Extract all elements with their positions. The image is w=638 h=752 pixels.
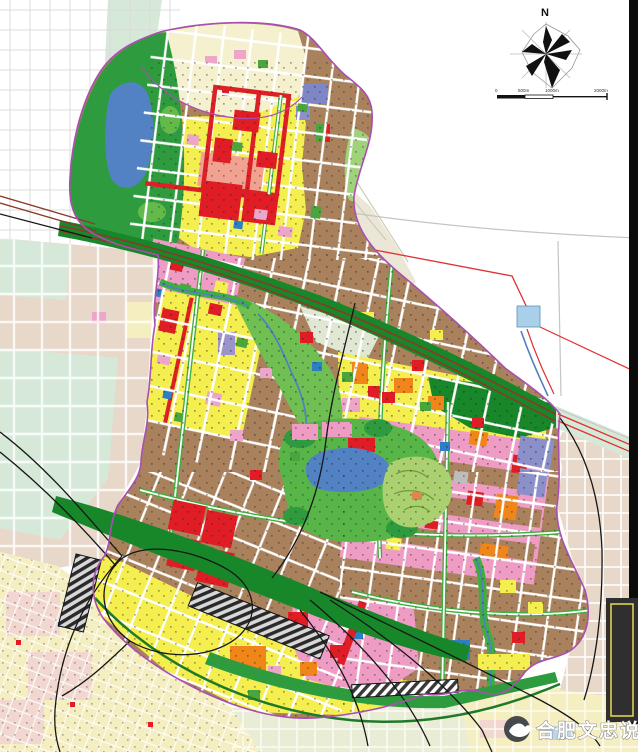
- reservoir: [517, 306, 540, 327]
- scale-label-500: 500m: [518, 88, 530, 93]
- planning-map: N 0 500m 1000m 2000m 合肥文忠说: [0, 0, 638, 752]
- parcel: [70, 702, 75, 707]
- parcel: [16, 640, 21, 645]
- scale-segment: [525, 95, 553, 99]
- scale-label-2000: 2000m: [594, 88, 608, 93]
- north-label: N: [541, 7, 549, 19]
- parcel: [148, 722, 153, 727]
- planning-map-frame: N 0 500m 1000m 2000m 合肥文忠说: [0, 0, 638, 752]
- building-dots: [150, 58, 380, 258]
- watermark-text: 合肥文忠说: [536, 719, 638, 742]
- scale-label-1000: 1000m: [545, 88, 559, 93]
- scale-segment: [497, 95, 525, 99]
